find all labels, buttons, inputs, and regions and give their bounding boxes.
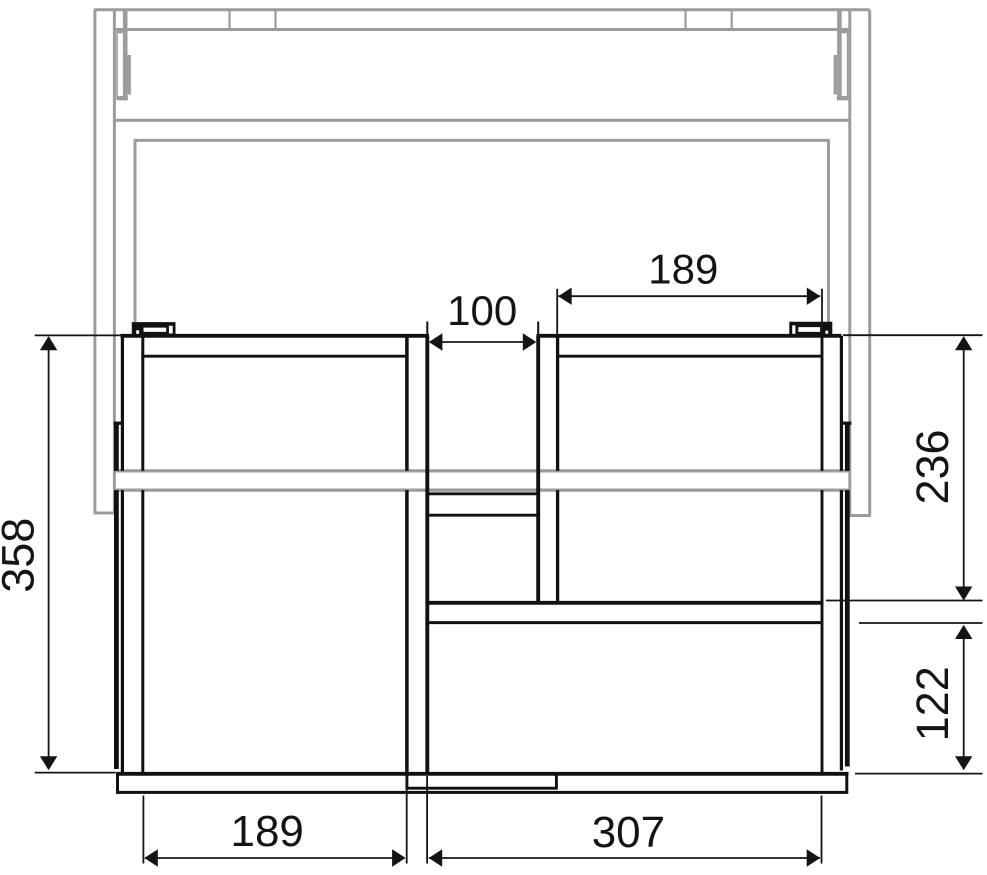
svg-text:189: 189 — [648, 245, 718, 292]
svg-text:236: 236 — [907, 429, 958, 504]
svg-text:307: 307 — [592, 808, 665, 857]
svg-text:189: 189 — [230, 807, 303, 856]
svg-text:100: 100 — [447, 287, 517, 334]
svg-text:122: 122 — [907, 666, 958, 741]
svg-text:358: 358 — [0, 518, 44, 593]
